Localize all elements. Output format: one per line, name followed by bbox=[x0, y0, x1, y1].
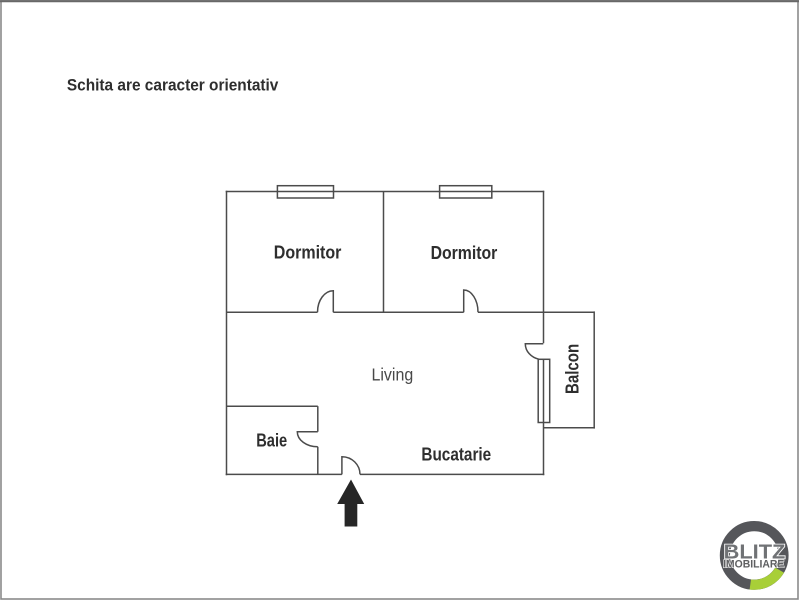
svg-text:Dormitor: Dormitor bbox=[431, 242, 498, 263]
svg-text:Living: Living bbox=[372, 365, 414, 385]
svg-text:Bucatarie: Bucatarie bbox=[421, 444, 491, 465]
svg-text:IMOBILIARE: IMOBILIARE bbox=[723, 559, 784, 571]
svg-text:Dormitor: Dormitor bbox=[274, 241, 342, 262]
svg-text:Baie: Baie bbox=[256, 431, 287, 451]
svg-text:Balcon: Balcon bbox=[563, 344, 583, 394]
svg-text:Schita are caracter orientativ: Schita are caracter orientativ bbox=[67, 76, 279, 95]
